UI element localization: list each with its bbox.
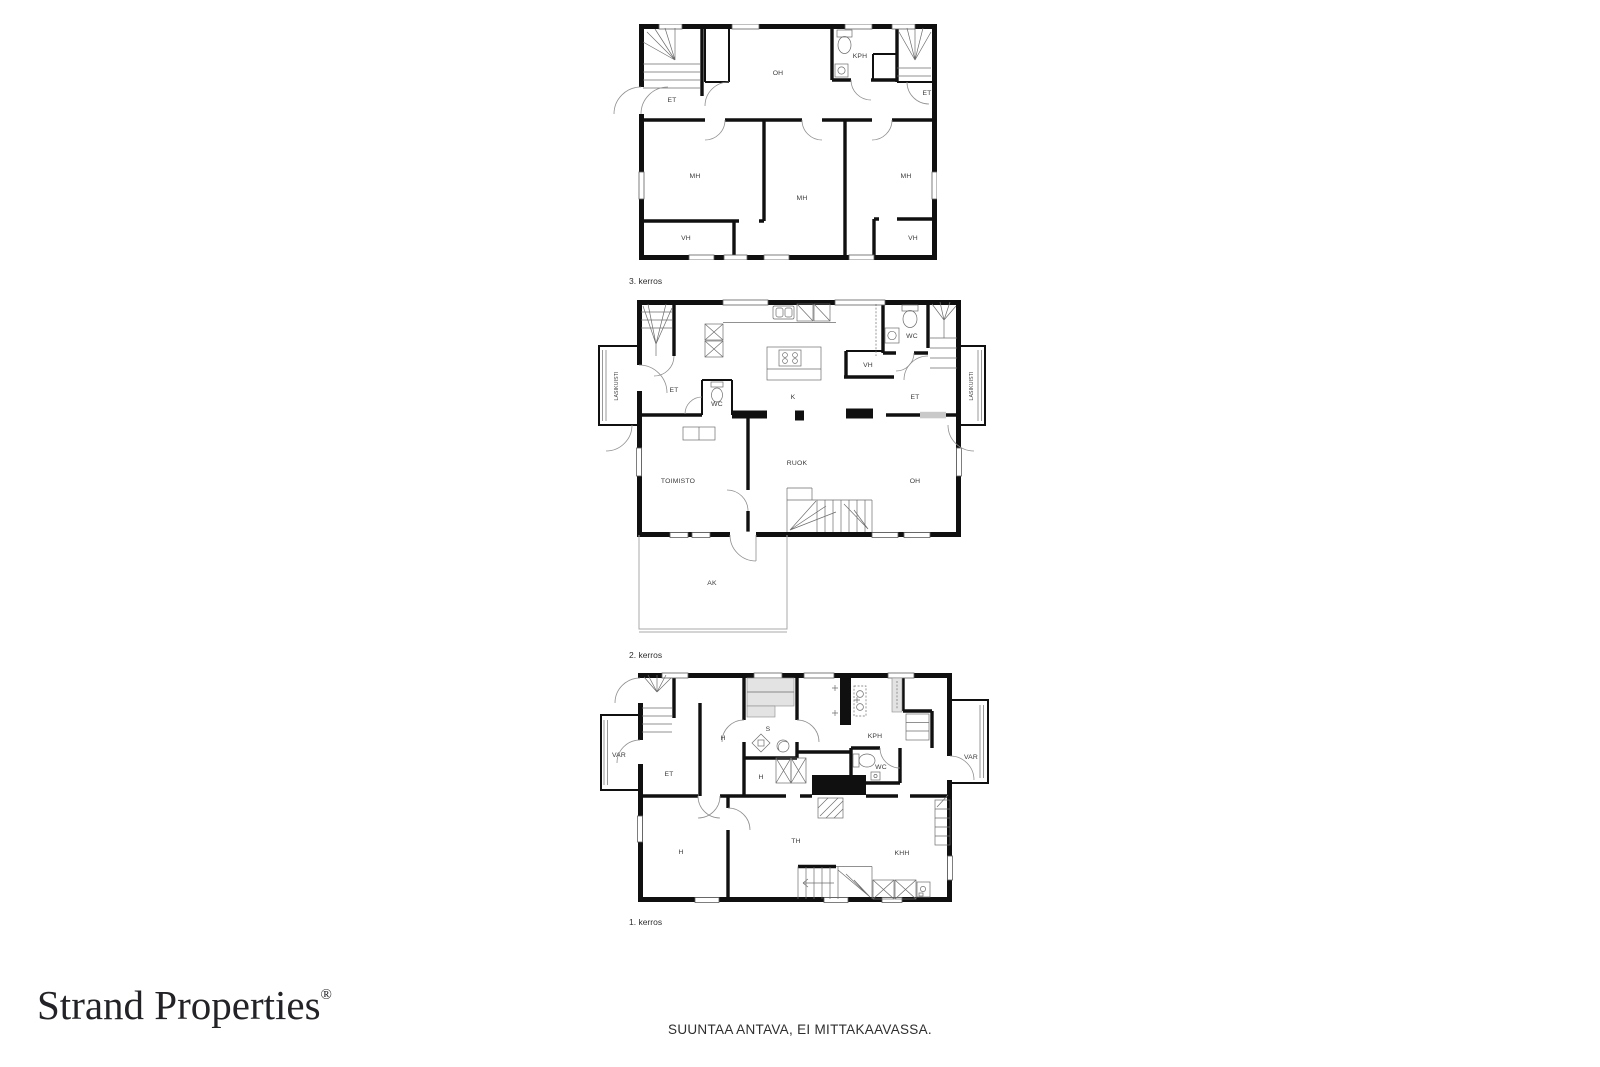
wardrobe-icon [776, 758, 806, 783]
toilet-icon [837, 30, 852, 54]
room-label: MH [690, 173, 701, 180]
vanity-icon [854, 678, 929, 740]
room-label: TOIMISTO [661, 478, 695, 485]
windows-floor3 [639, 24, 937, 260]
room-label: ET [669, 387, 678, 394]
room-label: ET [910, 394, 919, 401]
floor-label-3: 3. kerros [629, 276, 662, 286]
room-label: OH [910, 478, 921, 485]
brand-name: Strand Properties [37, 982, 321, 1028]
room-label: S [766, 726, 771, 733]
windows-floor1 [604, 673, 984, 903]
room-label: VAR [612, 752, 626, 759]
laundry-icons [873, 880, 930, 899]
room-label: RUOK [787, 460, 808, 467]
room-label: KHH [895, 850, 910, 857]
room-label: VH [681, 235, 691, 242]
wardrobe-icon [705, 324, 723, 357]
sideboard [683, 427, 715, 440]
sauna-stove-icon [752, 734, 789, 752]
room-label: H [720, 735, 725, 742]
room-label: TH [791, 838, 800, 845]
room-label: AK [707, 580, 717, 587]
room-label: KPH [868, 733, 883, 740]
room-label: MH [797, 195, 808, 202]
floor-plan-3: ET OH KPH ET MH MH MH VH VH [609, 24, 937, 260]
room-label: WC [875, 764, 887, 771]
room-label: VH [908, 235, 918, 242]
sauna-bench [747, 678, 794, 717]
floor-label-2: 2. kerros [629, 650, 662, 660]
room-label: H [678, 849, 683, 856]
walls-floor3 [641, 26, 935, 258]
room-label: LASIKUISTI [614, 372, 620, 401]
chimney-block [812, 775, 866, 795]
room-label: KPH [853, 53, 868, 60]
room-label: K [791, 394, 796, 401]
room-label: ET [667, 97, 676, 104]
room-label: ET [922, 90, 931, 97]
room-label: VAR [964, 754, 978, 761]
floor-plan-1: VAR ET H S KPH WC VAR H H TH KHH [598, 668, 992, 930]
floor-label-1: 1. kerros [629, 917, 662, 927]
room-label: OH [773, 70, 784, 77]
floor-plan-2: LASIKUISTI LASIKUISTI ET WC K VH WC ET T… [596, 298, 990, 634]
room-label: H [758, 774, 763, 781]
brand-logo: Strand Properties® [37, 981, 332, 1029]
walls-floor1 [601, 675, 988, 900]
disclaimer-text: SUUNTAA ANTAVA, EI MITTAKAAVASSA. [600, 1022, 1000, 1037]
room-label: VH [863, 362, 873, 369]
fireplace-icon [818, 798, 843, 818]
door-arcs-floor3 [614, 80, 929, 140]
room-label: WC [711, 401, 723, 408]
floorplan-page: ET OH KPH ET MH MH MH VH VH 3. kerros [0, 0, 1600, 1067]
door-arcs-floor1 [615, 678, 974, 830]
sink-icon [835, 64, 848, 77]
room-label: MH [901, 173, 912, 180]
room-label: LASIKUISTI [969, 372, 975, 401]
radiator [920, 412, 946, 419]
kitchen-island [767, 347, 821, 380]
room-label: WC [906, 333, 918, 340]
registered-mark-icon: ® [321, 987, 332, 1003]
kitchen-counter [723, 304, 876, 356]
room-label: ET [664, 771, 673, 778]
